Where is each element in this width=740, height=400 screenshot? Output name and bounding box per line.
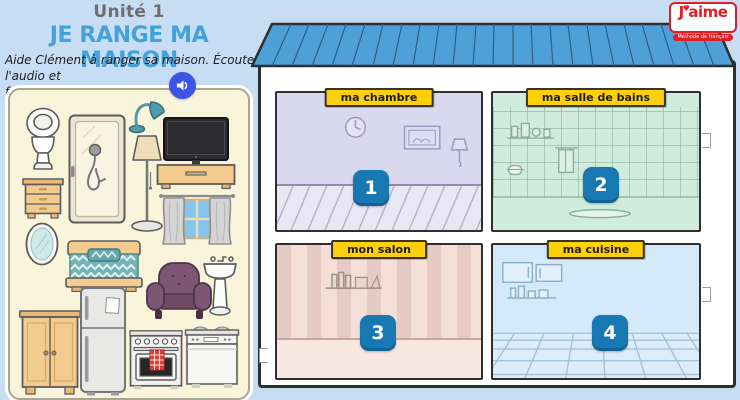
furniture-fridge[interactable] — [78, 286, 128, 396]
furniture-toilet[interactable] — [24, 106, 62, 172]
room-cuisine[interactable]: ma cuisine 4 — [491, 243, 701, 380]
bedroom-wall-decor — [277, 93, 481, 230]
house-roof — [246, 20, 740, 70]
room-salon[interactable]: mon salon 3 — [275, 243, 483, 380]
furniture-window-curtains[interactable] — [158, 192, 236, 248]
furniture-mirror[interactable] — [25, 222, 59, 266]
furniture-dresser[interactable] — [22, 178, 64, 220]
furniture-shower[interactable] — [68, 114, 126, 224]
brand-subtitle: Méthode de français — [673, 34, 732, 41]
instructions-line1: Aide Clément à ranger sa maison. Écoute … — [5, 52, 257, 84]
drop-target-2[interactable]: 2 — [583, 167, 619, 203]
drop-target-4[interactable]: 4 — [592, 315, 628, 351]
brand-logo: J♥aime Méthode de français — [669, 2, 737, 33]
wall-latch-mark — [702, 133, 711, 148]
furniture-tv-stand[interactable] — [156, 116, 236, 190]
salon-wall-decor — [277, 245, 481, 378]
room-label-chambre: ma chambre — [325, 88, 434, 107]
wall-latch-mark — [702, 287, 711, 302]
house: ma chambre 1 — [258, 60, 736, 388]
furniture-panel — [8, 88, 250, 400]
room-label-cuisine: ma cuisine — [547, 240, 645, 259]
furniture-wardrobe[interactable] — [19, 310, 81, 396]
furniture-dishwasher[interactable] — [184, 324, 240, 390]
wall-latch-mark — [259, 348, 268, 363]
bathroom-wall-decor — [493, 93, 699, 230]
activity-screen: Unité 1 JE RANGE MA MAISON Aide Clément … — [0, 0, 740, 400]
room-chambre[interactable]: ma chambre 1 — [275, 91, 483, 232]
furniture-bed[interactable] — [62, 240, 146, 292]
furniture-stove[interactable] — [128, 330, 184, 390]
kitchen-decor — [493, 245, 699, 378]
unit-title: Unité 1 — [0, 2, 258, 22]
room-salle-de-bains[interactable]: ma salle de bains 2 — [491, 91, 701, 232]
room-label-salon: mon salon — [331, 240, 427, 259]
audio-button[interactable] — [169, 72, 196, 99]
brand-name: J♥aime — [671, 4, 735, 23]
heart-icon: ♥ — [683, 4, 690, 13]
drop-target-1[interactable]: 1 — [353, 170, 389, 206]
speaker-icon — [175, 78, 190, 93]
furniture-pedestal-sink[interactable] — [202, 254, 238, 318]
drop-target-3[interactable]: 3 — [360, 315, 396, 351]
room-label-salle-de-bains: ma salle de bains — [526, 88, 666, 107]
